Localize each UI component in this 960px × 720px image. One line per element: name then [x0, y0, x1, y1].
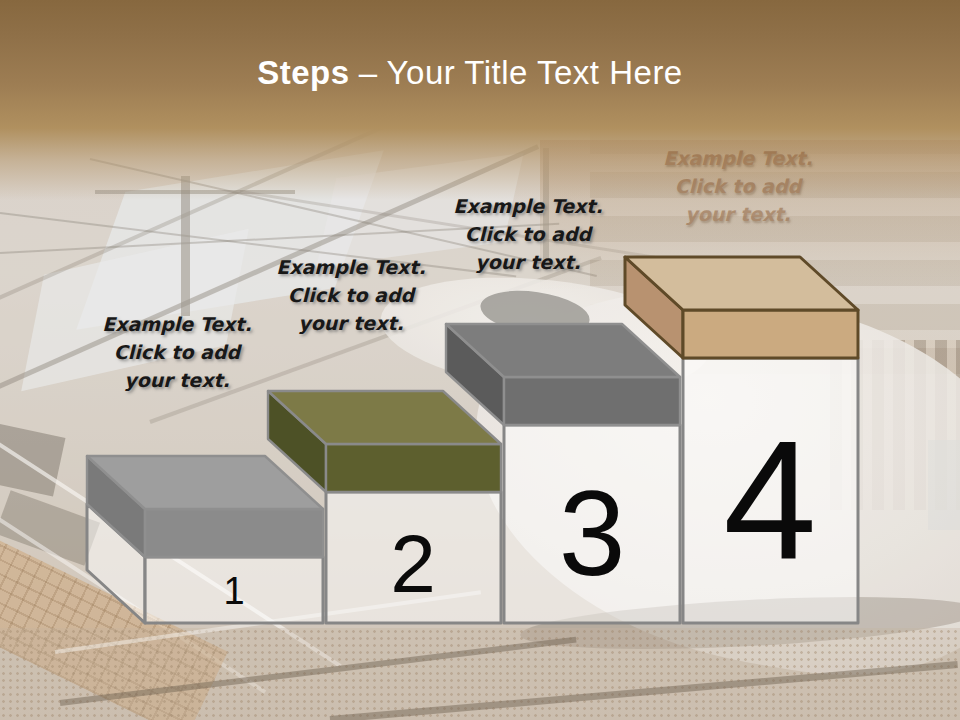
placeholder-line: your text. — [432, 248, 624, 276]
placeholder-line: Click to add — [255, 281, 447, 309]
slide-title: Steps– Your Title Text Here — [0, 54, 940, 92]
step-4-number: 4 — [723, 406, 816, 594]
step-1: 1 — [87, 456, 323, 623]
placeholder-line: Example Text. — [255, 253, 447, 281]
placeholder-line: Click to add — [81, 338, 273, 366]
step-1-slab-front-face — [145, 509, 323, 557]
step-1-number: 1 — [223, 570, 244, 612]
step-2-text-placeholder[interactable]: Example Text. Click to add your text. — [255, 253, 447, 337]
step-2-number: 2 — [390, 518, 436, 609]
step-4-text-placeholder[interactable]: Example Text. Click to add your text. — [642, 144, 834, 228]
placeholder-line: your text. — [255, 309, 447, 337]
slide-title-rest: – Your Title Text Here — [359, 54, 683, 91]
step-1-text-placeholder[interactable]: Example Text. Click to add your text. — [81, 310, 273, 394]
slide-title-emphasis: Steps — [257, 54, 349, 91]
placeholder-line: Example Text. — [642, 144, 834, 172]
placeholder-line: your text. — [81, 366, 273, 394]
placeholder-line: Example Text. — [81, 310, 273, 338]
step-2-slab-front-face — [326, 444, 501, 492]
step-4-slab-front-face — [683, 310, 858, 358]
slide-canvas: Steps– Your Title Text Here 4 3 2 — [0, 0, 960, 720]
placeholder-line: Click to add — [432, 220, 624, 248]
step-3-slab-front-face — [504, 377, 680, 425]
placeholder-line: Click to add — [642, 172, 834, 200]
step-3-text-placeholder[interactable]: Example Text. Click to add your text. — [432, 192, 624, 276]
placeholder-line: your text. — [642, 200, 834, 228]
step-3-number: 3 — [559, 466, 626, 600]
placeholder-line: Example Text. — [432, 192, 624, 220]
